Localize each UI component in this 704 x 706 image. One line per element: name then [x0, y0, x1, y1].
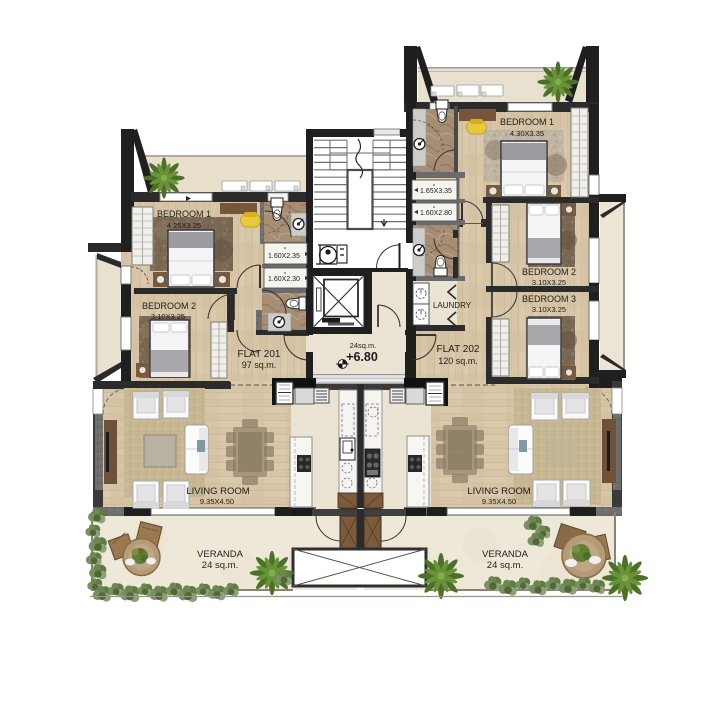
svg-text:BEDROOM 1: BEDROOM 1: [157, 209, 211, 219]
svg-text:LIVING ROOM: LIVING ROOM: [186, 486, 249, 497]
svg-text:LIVING ROOM: LIVING ROOM: [467, 486, 530, 497]
svg-text:3.10X3.25: 3.10X3.25: [532, 305, 566, 314]
svg-text:VERANDA: VERANDA: [197, 549, 244, 560]
svg-text:4.25X3.25: 4.25X3.25: [167, 221, 201, 230]
svg-text:120 sq.m.: 120 sq.m.: [438, 356, 478, 366]
svg-text:1.65X3.35: 1.65X3.35: [420, 188, 452, 195]
svg-text:97 sq.m.: 97 sq.m.: [242, 360, 277, 370]
svg-text:4.30X3.35: 4.30X3.35: [510, 129, 544, 138]
svg-text:BEDROOM 2: BEDROOM 2: [522, 267, 576, 277]
svg-text:VERANDA: VERANDA: [482, 549, 529, 560]
svg-text:1.60X2.35: 1.60X2.35: [268, 253, 300, 260]
svg-text:24 sq.m.: 24 sq.m.: [487, 560, 523, 571]
svg-text:FLAT 202: FLAT 202: [437, 344, 480, 355]
svg-text:9.35X4.50: 9.35X4.50: [482, 497, 516, 506]
svg-text:BEDROOM 2: BEDROOM 2: [142, 301, 196, 311]
svg-text:9.35X4.50: 9.35X4.50: [200, 497, 234, 506]
svg-text:+6.80: +6.80: [346, 350, 378, 364]
svg-text:BEDROOM 1: BEDROOM 1: [500, 117, 554, 127]
svg-text:24sq.m.: 24sq.m.: [350, 341, 377, 350]
svg-text:3.10X3.25: 3.10X3.25: [151, 312, 185, 321]
svg-text:BEDROOM 3: BEDROOM 3: [522, 294, 576, 304]
svg-text:1.60X2.30: 1.60X2.30: [268, 276, 300, 283]
svg-text:LAUNDRY: LAUNDRY: [433, 301, 472, 310]
svg-text:3.10X3.25: 3.10X3.25: [532, 278, 566, 287]
svg-text:24 sq.m.: 24 sq.m.: [202, 560, 238, 571]
svg-text:1.60X2.80: 1.60X2.80: [420, 210, 452, 217]
svg-text:FLAT 201: FLAT 201: [238, 349, 281, 360]
